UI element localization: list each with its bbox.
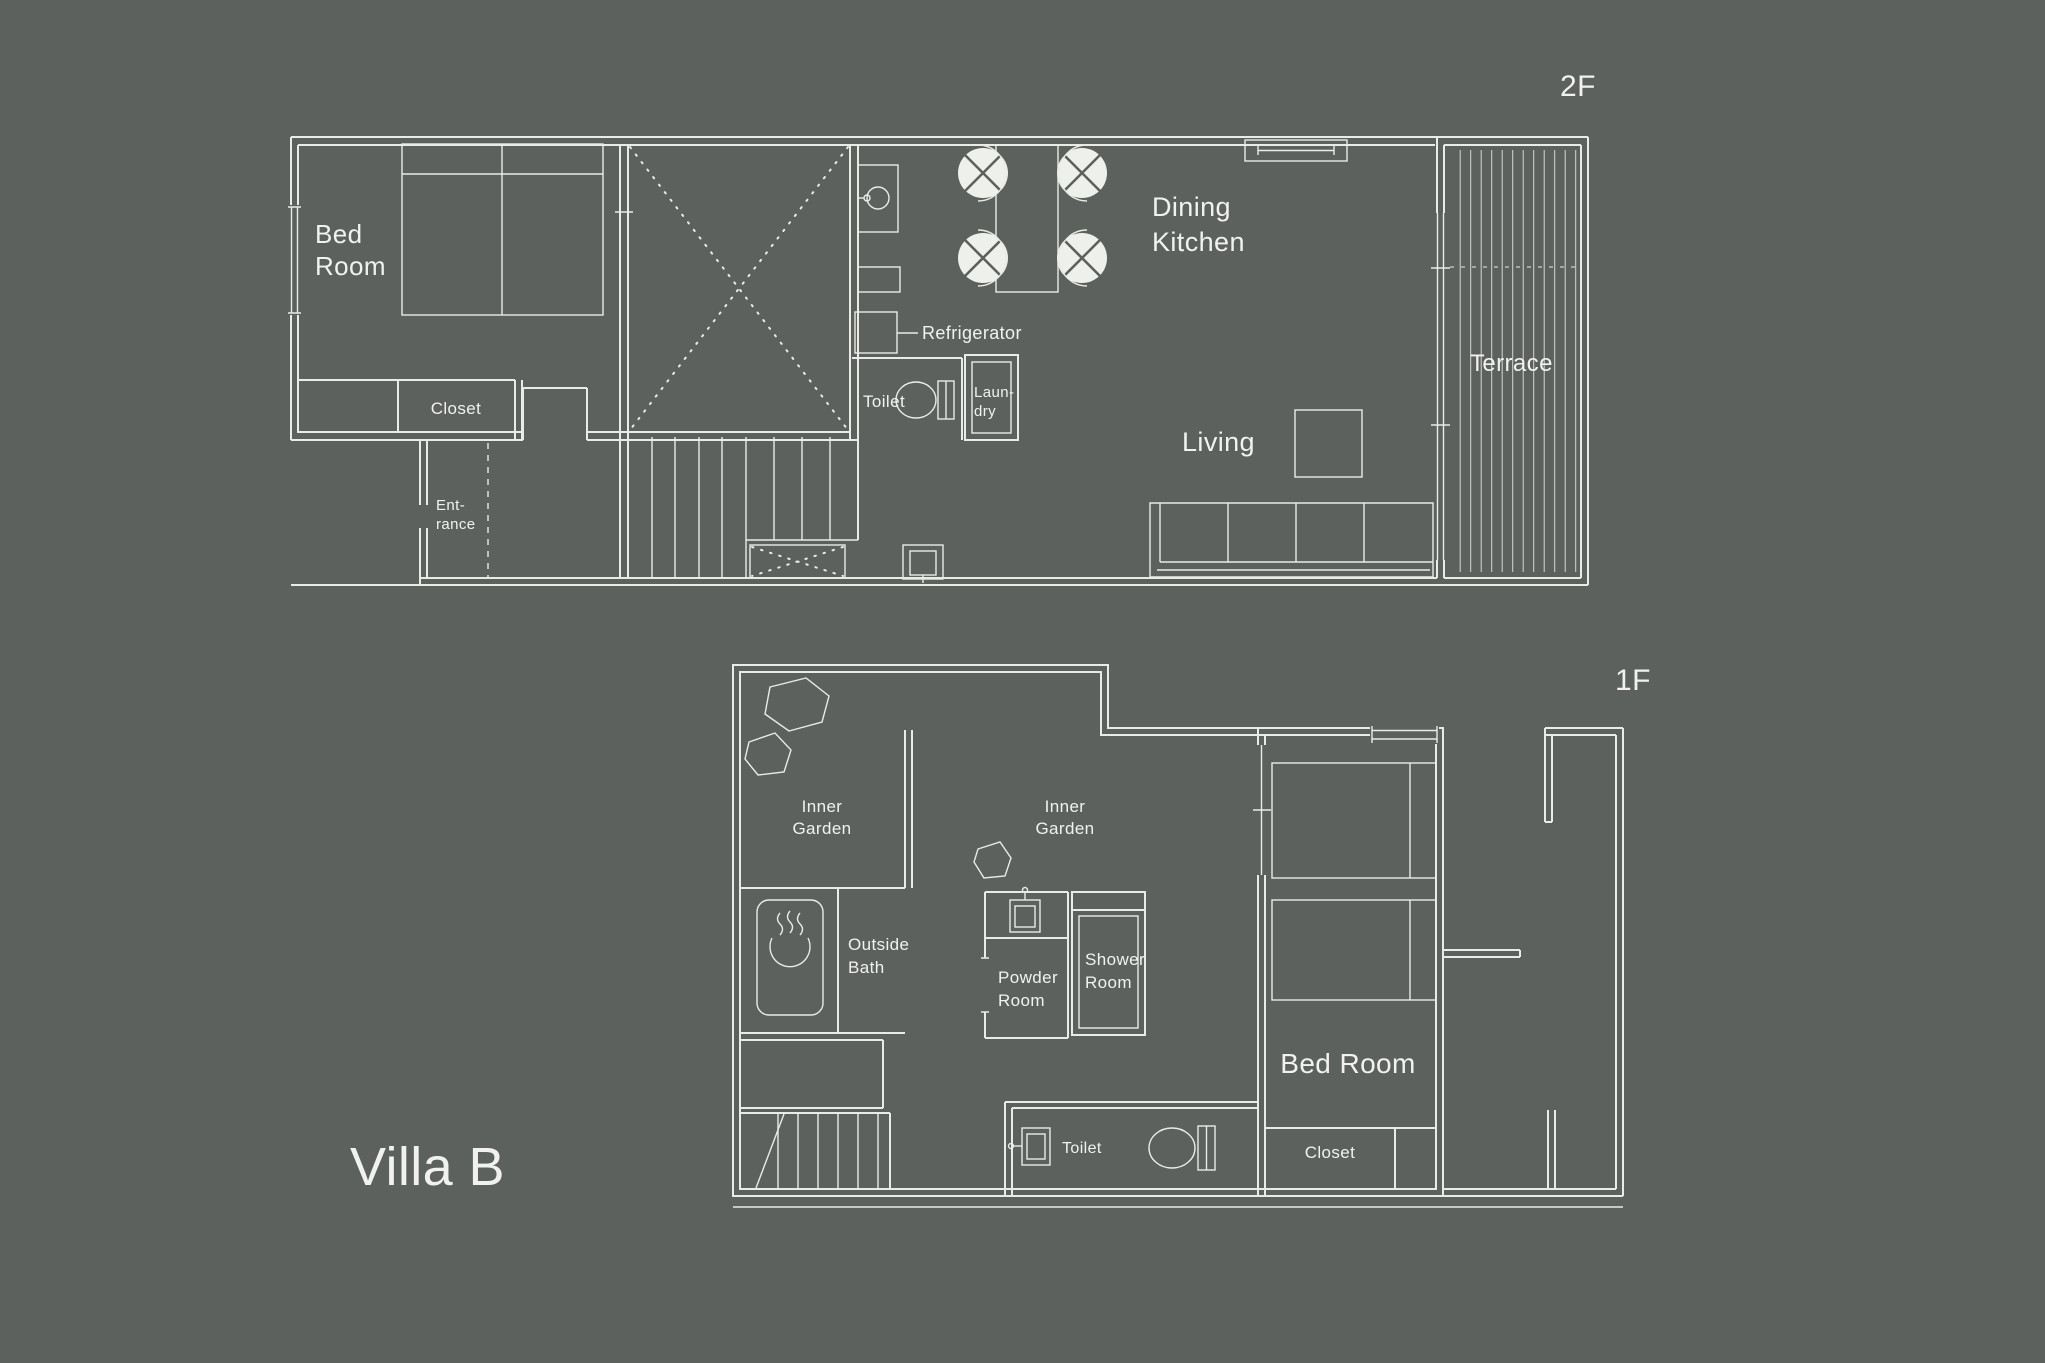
1f-garden1-label: Inner	[802, 797, 843, 816]
1f-window-erase	[1370, 725, 1439, 744]
2f-kitchen-cabinet	[858, 267, 900, 292]
dining-chair-icon	[1057, 145, 1107, 201]
toilet-icon	[1149, 1126, 1215, 1170]
1f-garden2-label: Inner	[1045, 797, 1086, 816]
2f-closet-label: Closet	[431, 399, 482, 418]
1f-powder-label: Powder	[998, 968, 1058, 987]
page-title: Villa B	[350, 1137, 505, 1197]
1f-shower-label2: Room	[1085, 973, 1132, 992]
2f-terrace-label: Terrace	[1470, 350, 1553, 377]
dining-chair-icon	[958, 230, 1008, 286]
1f-single-beds	[1272, 763, 1436, 1000]
2f-toilet-label: Toilet	[863, 392, 905, 411]
refrigerator-icon	[855, 312, 918, 353]
1f-garden1-label2: Garden	[792, 819, 851, 838]
2f-dining-label2: Kitchen	[1152, 227, 1245, 257]
2f-bedroom-label: Bed	[315, 219, 362, 249]
2f-void-x	[630, 147, 848, 430]
dining-chair-icon	[1057, 230, 1107, 286]
sofa	[1150, 503, 1433, 577]
1f-powder-door-ticks	[981, 958, 989, 1012]
1f-outside-bath-label: Outside	[848, 935, 909, 954]
1f-outside-bath-label2: Bath	[848, 958, 885, 977]
2f-dining-set	[958, 145, 1107, 292]
1f-walls	[733, 665, 1623, 1196]
side-table	[1295, 410, 1362, 477]
2f-walls	[291, 137, 1588, 585]
2f-double-bed	[402, 144, 603, 315]
2f-staircase	[652, 437, 858, 578]
1f-shower-label: Shower	[1085, 950, 1145, 969]
2f-stair-void-x	[752, 547, 843, 576]
2f-bedroom-label2: Room	[315, 251, 386, 281]
2f-bedroom-window-erase	[287, 205, 301, 315]
washbasin-icon	[1009, 1128, 1051, 1165]
2f-refrigerator-label: Refrigerator	[922, 323, 1022, 343]
floor-1f: 1F Inner Garden Inner Garden Outside Bat…	[733, 664, 1651, 1207]
1f-toilet-label: Toilet	[1062, 1140, 1102, 1157]
1f-bedroom-label: Bed Room	[1280, 1048, 1416, 1079]
dining-chair-icon	[958, 145, 1008, 201]
2f-terrace-door	[1431, 213, 1450, 560]
hot-spring-icon	[770, 911, 810, 967]
2f-kitchen-counter	[858, 165, 900, 292]
1f-floor-tag: 1F	[1615, 664, 1651, 697]
floor-plan-drawing: 2F Bed Room Closet Ent- rance Refrigerat…	[0, 0, 2045, 1363]
2f-dining-label: Dining	[1152, 192, 1231, 222]
2f-floor-tag: 2F	[1560, 70, 1596, 103]
2f-entrance-label: Ent-	[436, 497, 465, 514]
1f-staircase	[756, 1113, 878, 1189]
1f-garden2-label2: Garden	[1035, 819, 1094, 838]
garden-stones	[745, 678, 1011, 878]
2f-laundry-label: Laun-	[974, 384, 1014, 401]
shower-room-lining	[1079, 916, 1138, 1028]
1f-bedroom-door	[1253, 745, 1271, 875]
washbasin-icon	[1010, 888, 1040, 933]
1f-powder-label2: Room	[998, 991, 1045, 1010]
2f-laundry-label2: dry	[974, 403, 996, 420]
villa-b-floorplan-page: 2F Bed Room Closet Ent- rance Refrigerat…	[0, 0, 2045, 1363]
1f-closet-label: Closet	[1305, 1143, 1356, 1162]
floor-2f: 2F Bed Room Closet Ent- rance Refrigerat…	[287, 70, 1596, 585]
window-icon	[1245, 140, 1347, 161]
2f-living-label: Living	[1182, 427, 1255, 457]
2f-entrance-label2: rance	[436, 516, 476, 533]
outside-bath-tub	[757, 900, 823, 1015]
